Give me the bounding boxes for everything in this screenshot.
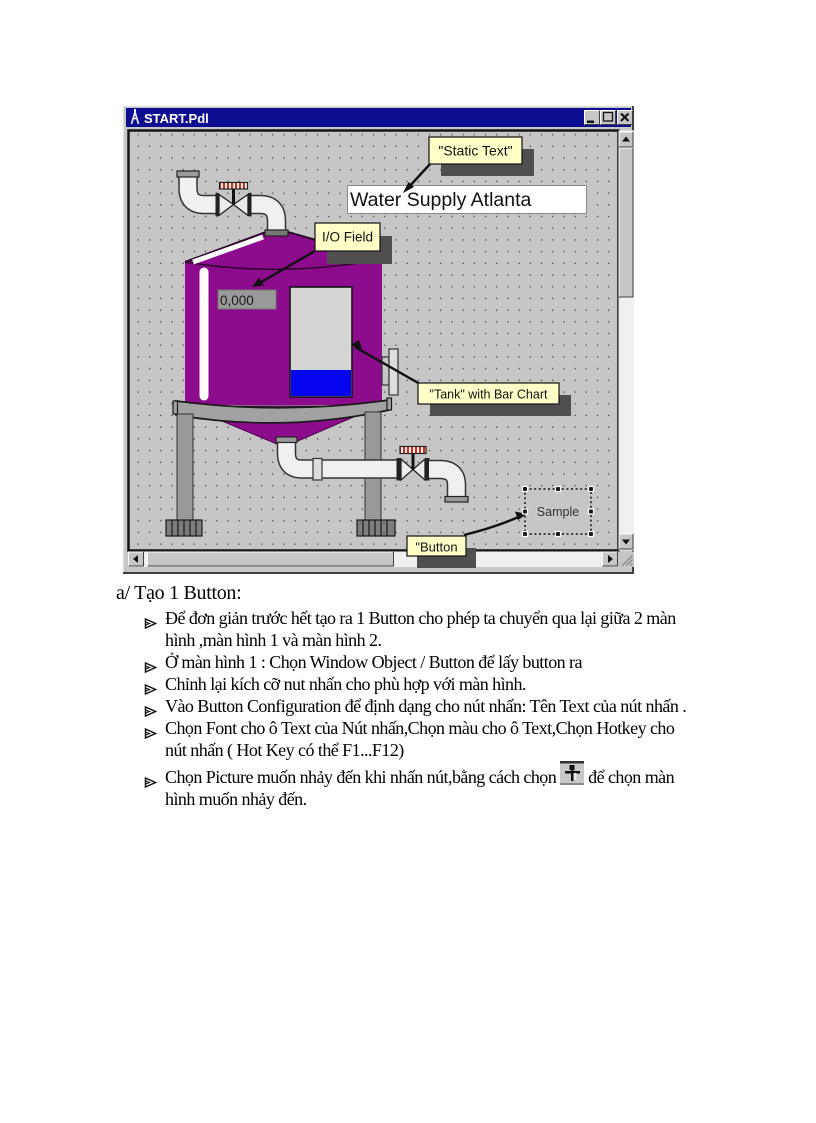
svg-text:0,000: 0,000 bbox=[220, 293, 254, 308]
svg-text:Water Supply Atlanta: Water Supply Atlanta bbox=[350, 189, 532, 211]
svg-text:I/O Field: I/O Field bbox=[322, 230, 373, 245]
svg-text:"Button: "Button bbox=[415, 540, 457, 555]
svg-text:START.Pdl: START.Pdl bbox=[144, 111, 209, 126]
svg-text:Sample: Sample bbox=[537, 505, 579, 519]
svg-text:"Tank" with Bar Chart: "Tank" with Bar Chart bbox=[430, 388, 548, 402]
svg-text:"Static Text": "Static Text" bbox=[438, 143, 512, 159]
